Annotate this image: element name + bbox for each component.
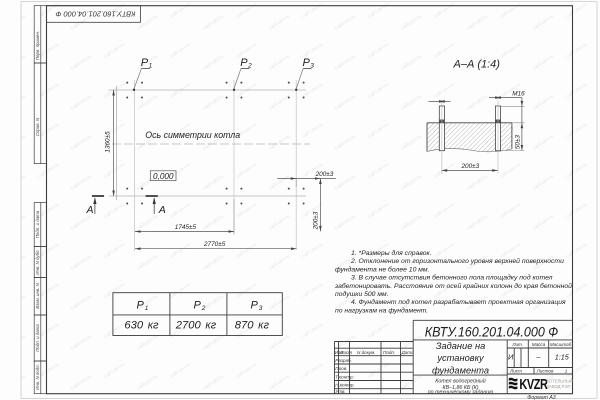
svg-text:по техническому заданию: по техническому заданию	[428, 389, 493, 395]
svg-text:Подп.: Подп.	[383, 350, 395, 355]
svg-text:КОТЕЛЬНЫЙ: КОТЕЛЬНЫЙ	[547, 379, 573, 384]
svg-text:подушки 500 мм.: подушки 500 мм.	[335, 290, 389, 298]
svg-text:P: P	[137, 300, 145, 312]
svg-text:Т.контр.: Т.контр.	[335, 374, 354, 379]
svg-text:КВТУ.160.201.04.000 Ф: КВТУ.160.201.04.000 Ф	[425, 324, 559, 340]
svg-text:A: A	[158, 204, 166, 216]
svg-text:2700 кг: 2700 кг	[175, 320, 217, 332]
svg-text:И: И	[508, 353, 514, 362]
svg-text:870 кг: 870 кг	[235, 320, 270, 332]
svg-text:4. Фундамент под котел разраба: 4. Фундамент под котел разрабатывает про…	[351, 298, 566, 306]
svg-text:–: –	[535, 352, 541, 361]
svg-text:3. В случае отсутствия бетонно: 3. В случае отсутствия бетонного пола пл…	[351, 274, 553, 282]
svg-text:А–А (1:4): А–А (1:4)	[453, 59, 501, 71]
svg-text:Котел водогрейный: Котел водогрейный	[435, 377, 485, 384]
svg-text:фундамента не более 10 мм.: фундамента не более 10 мм.	[335, 265, 430, 273]
svg-text:1:15: 1:15	[555, 353, 570, 362]
svg-text:Перв. примен.: Перв. примен.	[35, 31, 40, 60]
svg-text:3: 3	[259, 305, 263, 312]
svg-text:фундамента: фундамента	[432, 365, 489, 375]
svg-text:200±3: 200±3	[461, 163, 480, 170]
svg-text:KVZR: KVZR	[519, 375, 548, 392]
svg-text:50±3: 50±3	[515, 135, 522, 150]
svg-text:630 кг: 630 кг	[124, 320, 159, 332]
svg-text:установку: установку	[436, 353, 485, 363]
svg-text:P: P	[251, 300, 259, 312]
svg-text:A: A	[86, 204, 94, 216]
svg-text:P: P	[194, 300, 202, 312]
svg-text:2. Отклонение от горизонтально: 2. Отклонение от горизонтального уровня …	[350, 257, 564, 265]
svg-text:1: 1	[565, 369, 568, 374]
svg-text:Формат А3: Формат А3	[527, 395, 555, 400]
svg-text:ЗАВОД РЭП: ЗАВОД РЭП	[547, 384, 571, 389]
svg-text:2: 2	[201, 305, 206, 312]
svg-text:Листов: Листов	[536, 369, 554, 374]
svg-text:Подп. и дата: Подп. и дата	[35, 324, 40, 352]
svg-text:200±3: 200±3	[315, 171, 334, 178]
svg-text:Взам. инв. N: Взам. инв. N	[35, 282, 40, 308]
svg-text:2770±5: 2770±5	[203, 241, 226, 248]
svg-text:Н.контр.: Н.контр.	[335, 383, 354, 388]
svg-text:Ось симметрии котла: Ось симметрии котла	[145, 130, 240, 140]
svg-text:Задание на: Задание на	[436, 341, 486, 351]
svg-text:1. *Размеры для справок.: 1. *Размеры для справок.	[351, 249, 432, 257]
svg-text:0,000: 0,000	[153, 172, 174, 181]
svg-text:Лист: Лист	[509, 369, 522, 374]
svg-text:Справ. N: Справ. N	[35, 117, 40, 136]
svg-text:1745±5: 1745±5	[175, 224, 197, 231]
svg-text:Подп. и дата: Подп. и дата	[35, 210, 40, 238]
svg-text:P: P	[141, 57, 149, 69]
svg-text:1: 1	[145, 305, 149, 312]
svg-text:200±3: 200±3	[313, 211, 320, 230]
svg-text:забетонировать. Расстояние от: забетонировать. Расстояние от осей крайн…	[334, 282, 572, 290]
svg-text:Инв. N дубл.: Инв. N дубл.	[35, 249, 40, 274]
svg-text:Масштаб: Масштаб	[550, 342, 572, 347]
svg-text:Разраб.: Разраб.	[335, 358, 352, 363]
svg-text:Утв.: Утв.	[335, 389, 345, 394]
svg-text:P: P	[303, 57, 311, 69]
svg-text:Лист: Лист	[339, 350, 352, 355]
svg-text:N докум.: N докум.	[357, 350, 376, 355]
svg-text:1360±5: 1360±5	[105, 131, 112, 153]
svg-text:Пров.: Пров.	[335, 366, 347, 371]
svg-text:Инв. N подл.: Инв. N подл.	[35, 364, 40, 390]
svg-text:P: P	[240, 57, 248, 69]
svg-text:Масса: Масса	[532, 342, 546, 347]
svg-text:Дата: Дата	[401, 350, 415, 355]
svg-text:Лит.: Лит.	[511, 342, 523, 347]
svg-text:по нагрузкам на фундамент.: по нагрузкам на фундамент.	[335, 306, 428, 314]
svg-text:М16: М16	[512, 91, 525, 98]
svg-text:КВТУ.160.201.04.000 Ф: КВТУ.160.201.04.000 Ф	[55, 10, 135, 19]
